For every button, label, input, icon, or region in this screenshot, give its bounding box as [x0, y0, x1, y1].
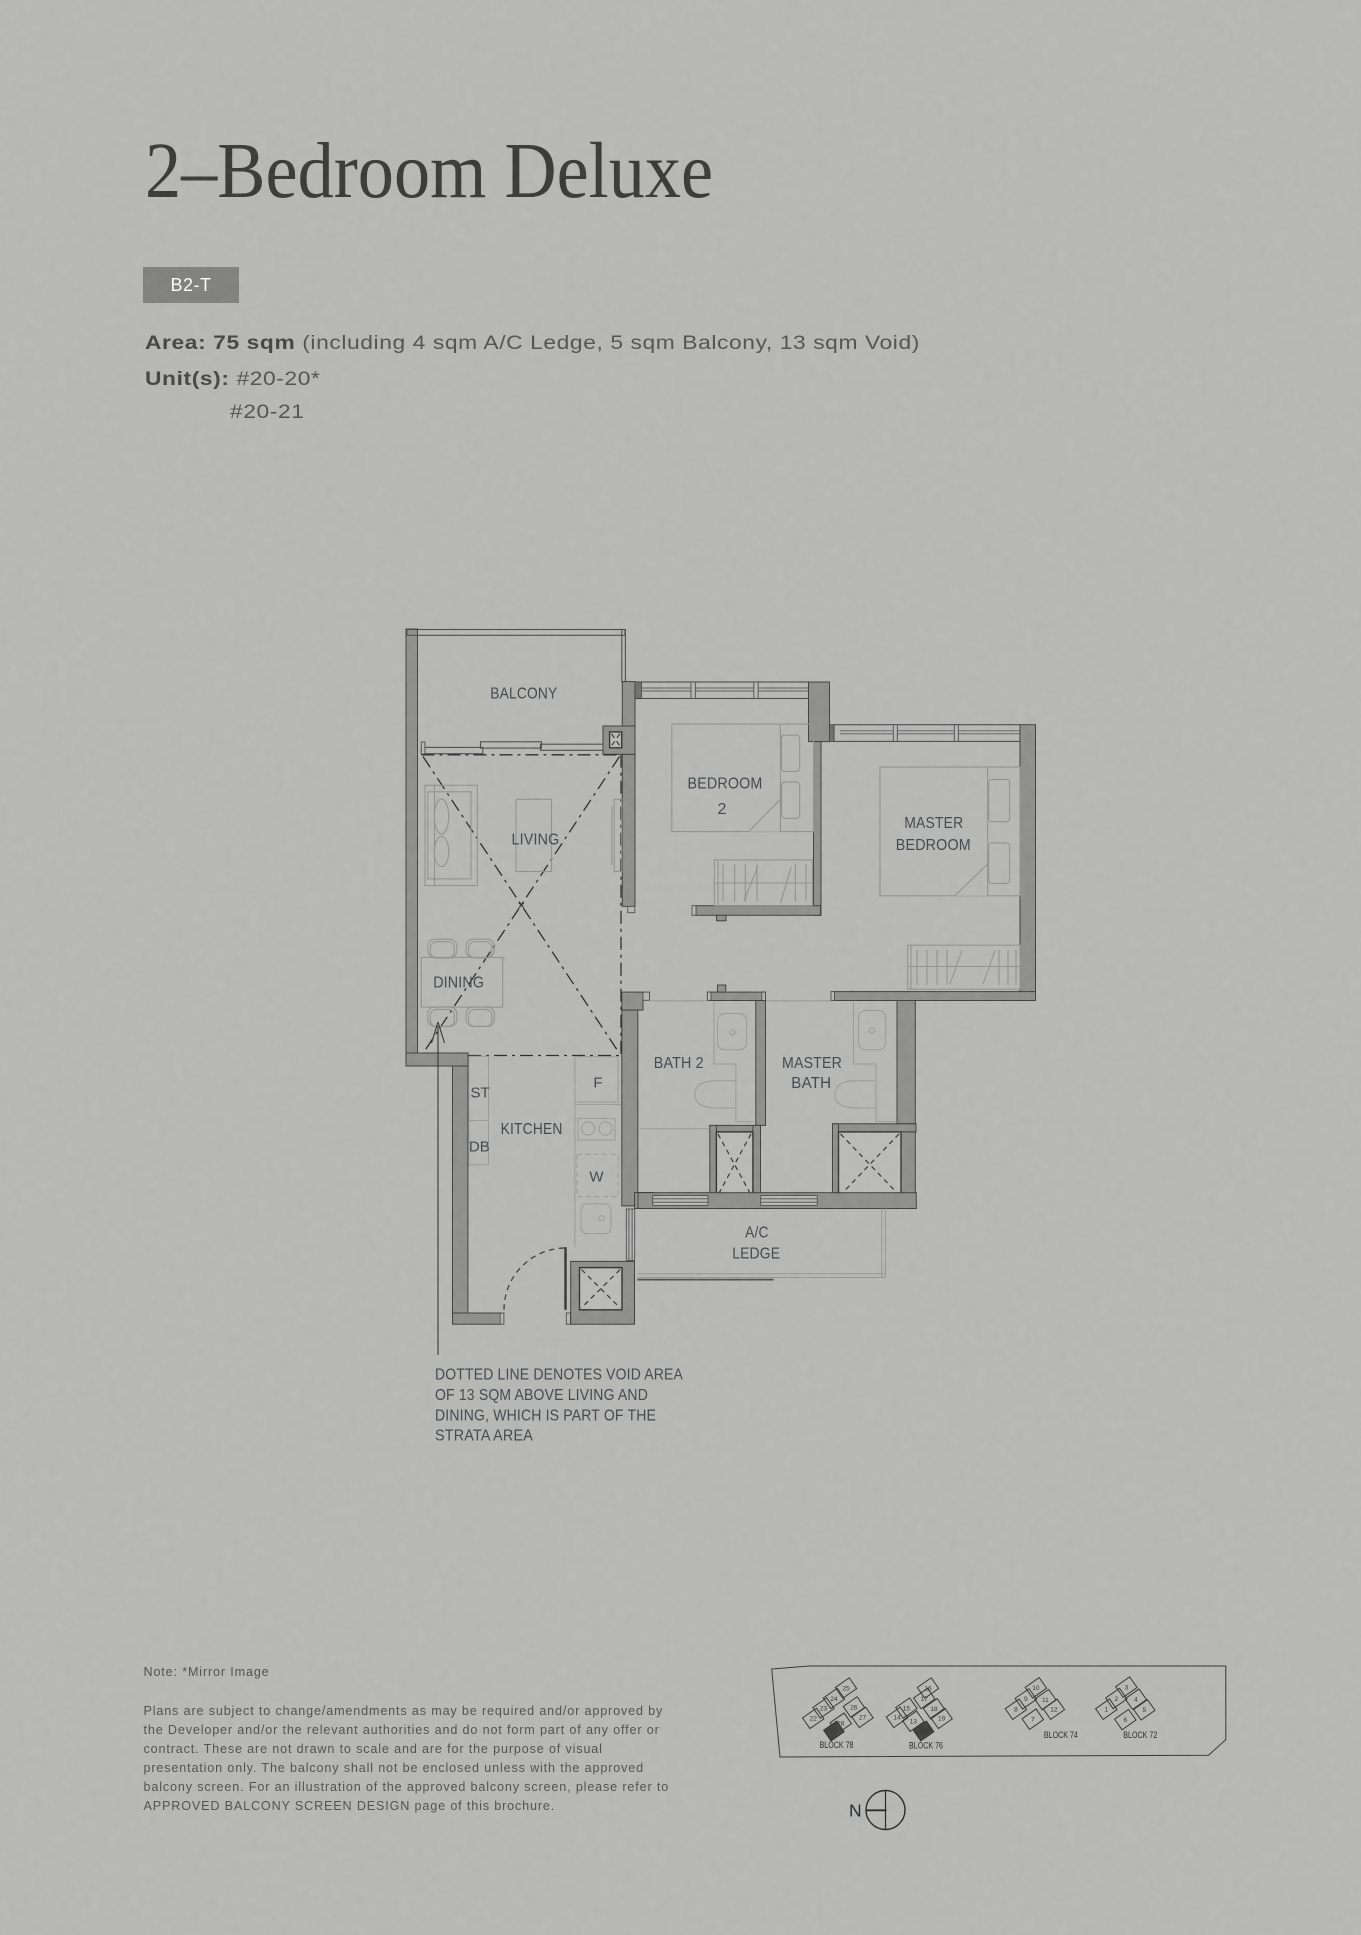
svg-text:1: 1	[1104, 1707, 1108, 1714]
svg-text:14: 14	[893, 1715, 901, 1722]
svg-text:22: 22	[810, 1716, 818, 1723]
svg-text:A/C: A/C	[745, 1225, 769, 1242]
svg-text:DINING: DINING	[433, 974, 484, 991]
svg-text:OF 13 SQM ABOVE LIVING AND: OF 13 SQM ABOVE LIVING AND	[435, 1387, 648, 1404]
svg-text:MASTER: MASTER	[904, 815, 963, 832]
svg-text:ST: ST	[471, 1084, 490, 1101]
svg-text:25: 25	[842, 1685, 850, 1692]
svg-text:N: N	[849, 1801, 862, 1821]
svg-text:10: 10	[1032, 1685, 1040, 1692]
svg-text:F: F	[593, 1075, 602, 1092]
svg-text:8: 8	[1014, 1707, 1018, 1714]
svg-text:17: 17	[921, 1696, 929, 1703]
svg-text:9: 9	[1024, 1696, 1028, 1703]
svg-text:MASTER: MASTER	[782, 1055, 842, 1072]
svg-text:DOTTED LINE DENOTES VOID AREA: DOTTED LINE DENOTES VOID AREA	[435, 1367, 683, 1384]
svg-text:4: 4	[1134, 1697, 1138, 1704]
svg-text:15: 15	[903, 1705, 911, 1712]
svg-text:BLOCK 72: BLOCK 72	[1123, 1730, 1157, 1741]
svg-text:BATH 2: BATH 2	[654, 1055, 704, 1072]
svg-text:BEDROOM: BEDROOM	[688, 776, 763, 793]
svg-text:BALCONY: BALCONY	[490, 686, 557, 703]
svg-text:DINING, WHICH IS PART OF THE: DINING, WHICH IS PART OF THE	[435, 1407, 656, 1424]
svg-text:20: 20	[920, 1728, 928, 1735]
svg-text:7: 7	[1031, 1717, 1035, 1724]
svg-text:2: 2	[1114, 1696, 1118, 1703]
svg-text:21: 21	[830, 1728, 838, 1735]
svg-text:6: 6	[1123, 1717, 1127, 1724]
svg-text:BLOCK 74: BLOCK 74	[1044, 1730, 1078, 1741]
svg-text:13: 13	[910, 1719, 918, 1726]
svg-text:18: 18	[930, 1706, 938, 1713]
svg-text:12: 12	[1050, 1707, 1058, 1714]
svg-text:24: 24	[830, 1696, 838, 1703]
svg-text:BEDROOM: BEDROOM	[896, 837, 971, 854]
svg-text:BATH: BATH	[791, 1075, 831, 1092]
svg-text:BLOCK 78: BLOCK 78	[820, 1740, 854, 1751]
svg-text:11: 11	[1042, 1697, 1049, 1704]
svg-text:27: 27	[859, 1715, 867, 1722]
svg-text:26: 26	[850, 1704, 858, 1711]
svg-text:19: 19	[938, 1716, 946, 1723]
svg-text:W: W	[589, 1169, 604, 1186]
svg-text:KITCHEN: KITCHEN	[501, 1121, 563, 1138]
svg-text:2: 2	[717, 801, 726, 818]
svg-text:BLOCK 76: BLOCK 76	[909, 1741, 943, 1752]
svg-text:23: 23	[820, 1705, 828, 1712]
svg-text:DB: DB	[469, 1139, 490, 1156]
svg-text:5: 5	[1142, 1707, 1146, 1714]
svg-text:LIVING: LIVING	[512, 831, 560, 848]
svg-text:LEDGE: LEDGE	[732, 1245, 780, 1262]
svg-text:3: 3	[1125, 1684, 1129, 1691]
svg-text:STRATA AREA: STRATA AREA	[435, 1428, 533, 1445]
